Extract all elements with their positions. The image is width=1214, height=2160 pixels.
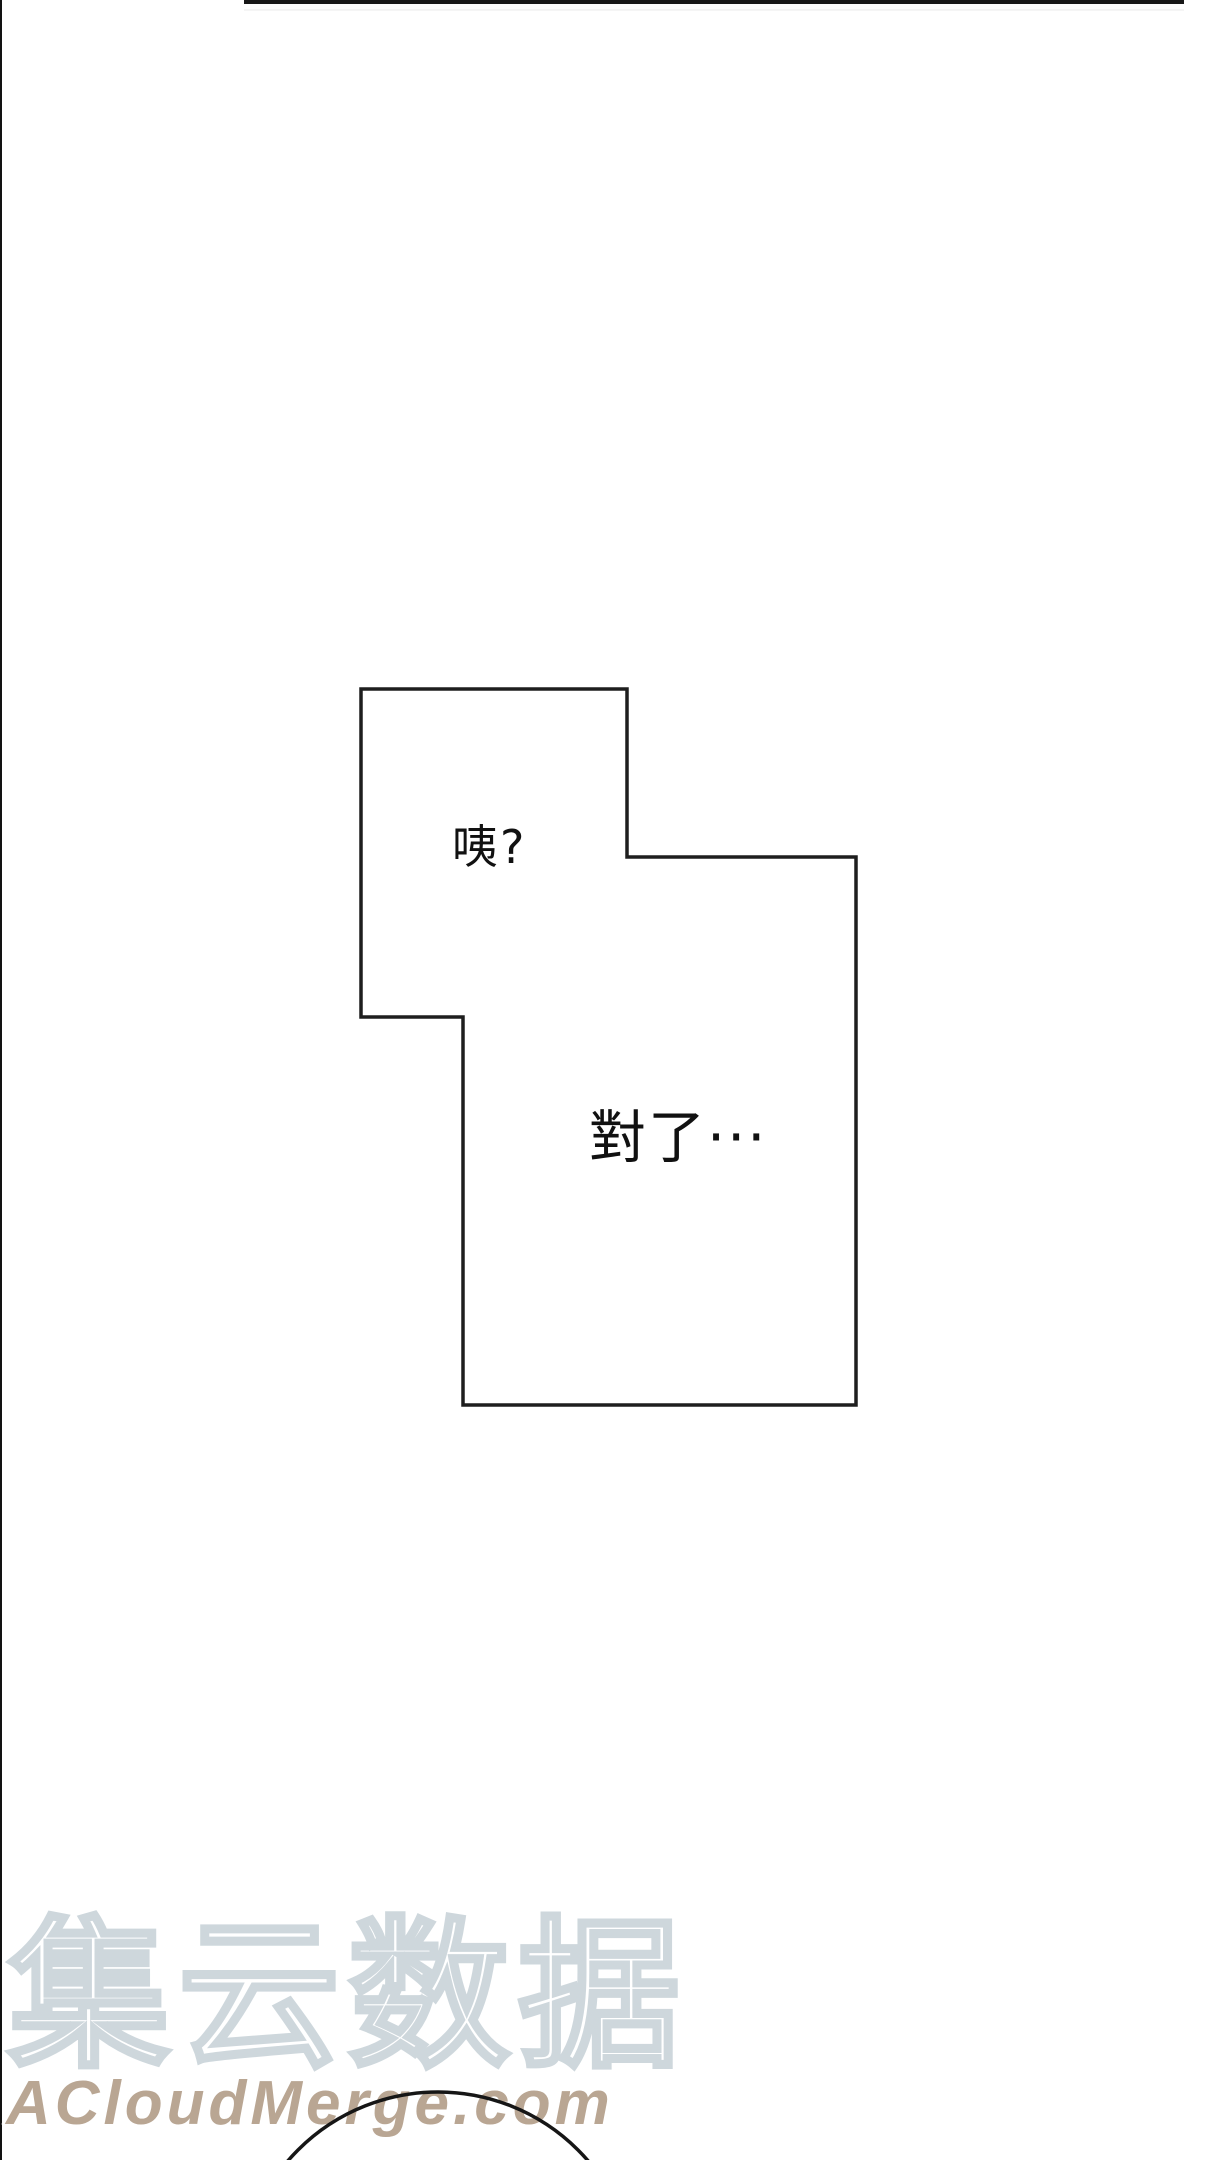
- comic-artwork: 集云数据 集云数据 ACloudMerge.com: [0, 0, 1214, 2160]
- top-bar-shadow-artifact: [244, 9, 1184, 11]
- page-left-border: [0, 0, 2, 2160]
- comic-page: 集云数据 集云数据 ACloudMerge.com 咦? 對了···: [0, 0, 1214, 2160]
- page-top-border: [244, 0, 1184, 4]
- speech-text-surprise: 咦?: [452, 824, 526, 870]
- speech-text-remark: 對了···: [589, 1110, 767, 1167]
- speech-bubble-outline: [361, 689, 856, 1405]
- watermark-url-text: ACloudMerge.com: [4, 2069, 614, 2138]
- watermark-cjk-outline: 集云数据: [7, 1903, 688, 2091]
